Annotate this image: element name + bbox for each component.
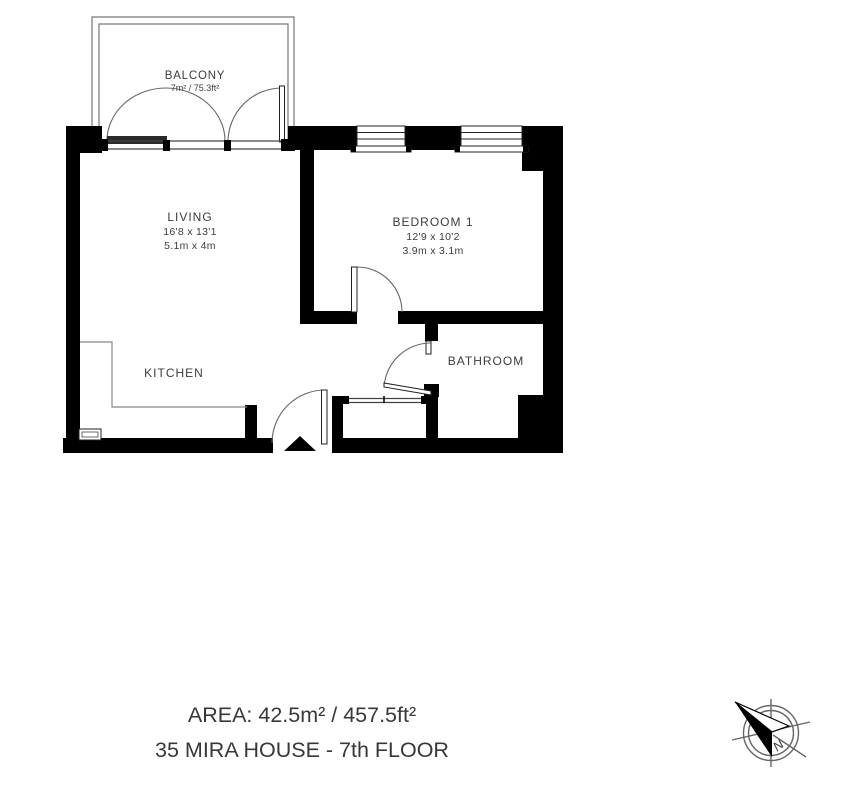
balcony: BALCONY 7m² / 75.3ft² — [87, 17, 295, 151]
footer-address-text: 35 MIRA HOUSE - 7th FLOOR — [155, 738, 449, 762]
kitchen: KITCHEN — [79, 342, 247, 440]
balcony-right-door-leaf — [280, 86, 285, 142]
wall-bottom-right — [332, 438, 563, 453]
balcony-right-door-arc — [228, 88, 282, 142]
sill-end-cap — [351, 146, 356, 152]
balcony-left-door-arc — [107, 88, 225, 141]
wall-corner-top-left — [66, 126, 102, 153]
hall-closet — [343, 396, 427, 404]
wall-bathroom-notch — [518, 395, 543, 438]
bathroom: BATHROOM — [384, 341, 524, 395]
window-sill-2 — [455, 146, 528, 152]
bedroom-door-arc — [357, 267, 402, 312]
wall-closet-left-stub — [332, 396, 343, 438]
bathroom-door-arc — [384, 343, 431, 387]
wall-bedroom-bottom-right — [398, 311, 543, 324]
bedroom1-dimensions-metric: 3.9m x 3.1m — [402, 245, 463, 257]
sill-end-cap — [455, 146, 460, 152]
balcony-label: BALCONY — [165, 70, 226, 82]
wall-bedroom-bottom-left — [300, 311, 357, 324]
sill-end-cap — [406, 146, 411, 152]
wall-top-between-windows — [405, 126, 461, 150]
wall-living-bedroom — [300, 126, 314, 323]
bathroom-door-leaf — [384, 383, 431, 395]
wall-right — [543, 126, 563, 453]
bedroom-window-1 — [357, 126, 405, 146]
bedroom-window-2 — [461, 126, 522, 146]
window-sill-1 — [351, 146, 411, 152]
floor-plan-drawing: BALCONY 7m² / 75.3ft² — [0, 0, 863, 792]
living-dimensions-imperial: 16'8 x 13'1 — [163, 226, 216, 238]
door-jamb-block — [101, 139, 108, 151]
wall-top-bedroom-left — [288, 126, 360, 150]
closet-end-cap — [421, 396, 427, 404]
floor-plan-page: BALCONY 7m² / 75.3ft² — [0, 0, 863, 792]
entrance-door-leaf — [322, 390, 328, 444]
entrance — [272, 390, 327, 451]
living-label: LIVING — [167, 210, 212, 224]
closet-end-cap — [343, 396, 349, 404]
bedroom1-label: BEDROOM 1 — [392, 215, 473, 229]
sill-end-cap — [523, 146, 528, 152]
living-dimensions-metric: 5.1m x 4m — [164, 240, 216, 252]
bedroom-door-leaf — [352, 267, 358, 312]
walls — [63, 126, 563, 453]
footer: AREA: 42.5m² / 457.5ft² 35 MIRA HOUSE - … — [155, 703, 449, 762]
compass: N — [732, 699, 810, 767]
kitchen-label: KITCHEN — [144, 366, 204, 380]
balcony-area-label: 7m² / 75.3ft² — [171, 83, 220, 93]
living-room: LIVING 16'8 x 13'1 5.1m x 4m — [163, 210, 216, 252]
entrance-door-arc — [272, 390, 325, 443]
door-jamb-block — [224, 140, 231, 151]
wall-bathroom-left-stub — [425, 324, 438, 341]
door-jamb-block — [163, 140, 170, 151]
entrance-arrow-icon — [284, 436, 316, 451]
footer-area-text: AREA: 42.5m² / 457.5ft² — [188, 703, 416, 727]
wall-kitchen-stub — [245, 405, 257, 443]
bedroom-1: BEDROOM 1 12'9 x 10'2 3.9m x 3.1m — [352, 215, 474, 312]
bedroom1-dimensions-imperial: 12'9 x 10'2 — [406, 231, 459, 243]
balcony-left-door-leaf — [107, 136, 167, 144]
wall-left — [66, 126, 80, 453]
bathroom-label: BATHROOM — [448, 354, 524, 368]
